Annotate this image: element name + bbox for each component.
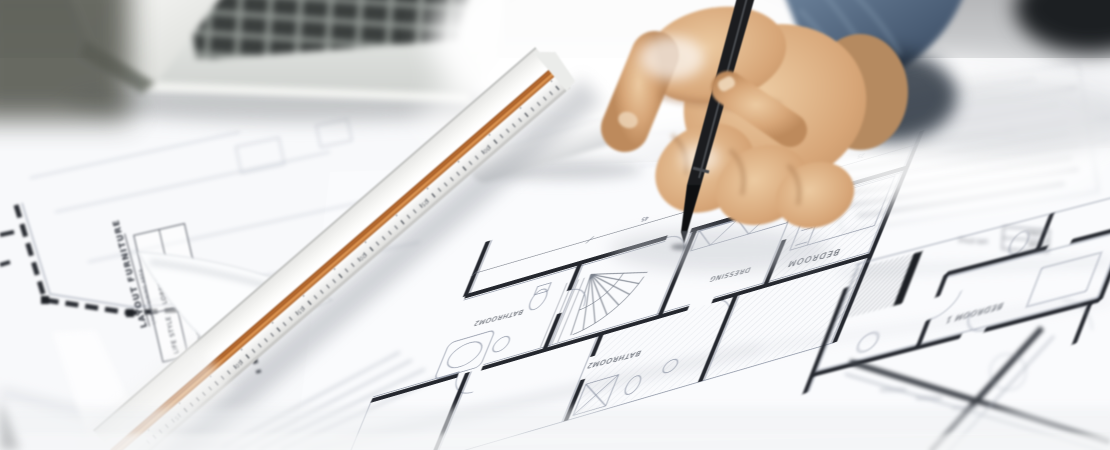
pen-tip-shadow: [671, 244, 691, 250]
hand-shadow-on-paper: [610, 228, 830, 272]
architect-desk-photo: LAYOUT FURNITURE LIVING-DINING AREA LIFE…: [0, 0, 1110, 450]
foreground-blur-strip-2: [0, 434, 1110, 450]
photo-canvas: LAYOUT FURNITURE LIVING-DINING AREA LIFE…: [0, 0, 1110, 450]
right-table-room: ROOM: [1028, 240, 1045, 247]
dark-corner-right: [1015, 0, 1110, 53]
right-table-living: LIVING: [1028, 229, 1046, 236]
skin-highlight-knuckle: [640, 36, 704, 80]
dark-corner-left: [0, 0, 130, 120]
